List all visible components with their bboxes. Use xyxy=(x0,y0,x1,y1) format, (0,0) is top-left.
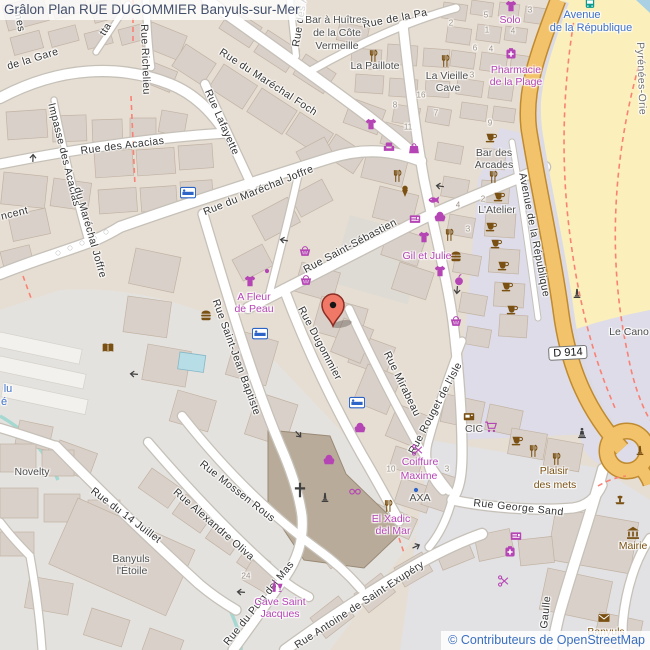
street-label: Rue Alexandre Oliva xyxy=(170,487,256,564)
oneway-arrow-icon xyxy=(27,151,38,162)
street-label: du Maréchal Joffre xyxy=(71,186,108,280)
clothing-icon xyxy=(418,231,431,244)
supermarket-icon xyxy=(485,421,498,434)
oneway-arrow-icon xyxy=(451,285,463,297)
street-label: Rue Richelieu xyxy=(137,24,151,95)
restaurant-icon xyxy=(439,55,452,68)
convenience-icon xyxy=(450,315,463,328)
poi-label: El Xadic xyxy=(372,514,411,526)
housenumber-label: 16 xyxy=(417,92,426,101)
poi-dot-icon xyxy=(264,268,271,275)
poi-label: des mets xyxy=(534,480,577,492)
fountain-icon xyxy=(614,495,627,508)
bakery-icon xyxy=(434,210,447,223)
poi-label: l'Étoile xyxy=(117,566,148,578)
map-title: Grâlon Plan RUE DUGOMMIER Banyuls-sur-Me… xyxy=(0,0,306,20)
place-label: lu xyxy=(4,383,13,395)
clothing-icon xyxy=(244,275,257,288)
hairdresser-icon xyxy=(412,444,425,457)
cafe-icon xyxy=(511,434,524,447)
restaurant-icon xyxy=(367,50,380,63)
housenumber-label: 8 xyxy=(393,102,397,111)
fishmonger-icon xyxy=(428,194,441,207)
street-label: Rue du Maréchal Foch xyxy=(217,47,319,119)
hotel-icon xyxy=(349,395,365,411)
housenumber-label: 11 xyxy=(404,124,412,133)
poi-label: Vermeille xyxy=(315,41,358,53)
poi-label: Solo xyxy=(499,15,520,27)
bakery-icon xyxy=(323,453,336,466)
poi-label: Bar des xyxy=(476,148,512,160)
street-label: Rue Rouget de l'Isle xyxy=(407,361,465,457)
clothing-icon xyxy=(365,118,378,131)
newsagent-icon xyxy=(409,213,422,226)
poi-label: de la Côte xyxy=(313,28,361,40)
oneway-arrow-icon xyxy=(127,368,139,380)
beauty-icon xyxy=(498,575,511,588)
cafe-icon xyxy=(497,259,510,272)
housenumber-label: 4 xyxy=(489,46,493,55)
poi-label: Bar à Huîtres xyxy=(305,15,367,27)
attribution-link[interactable]: © Contributeurs de OpenStreetMap xyxy=(441,631,650,650)
street-label: de la Gare xyxy=(6,46,60,73)
place-label: Avenue xyxy=(563,9,600,21)
oneway-arrow-icon xyxy=(410,539,425,554)
monument-icon xyxy=(319,492,331,504)
street-label: Rue de la Pa xyxy=(362,7,429,31)
oneway-arrow-icon xyxy=(234,586,246,598)
poi-label: de la Plage xyxy=(490,77,543,89)
poi-label: AXA xyxy=(409,493,430,505)
oneway-arrow-icon xyxy=(291,427,307,443)
monument-icon xyxy=(634,445,646,457)
street-label: Rue Saint-Sébastien xyxy=(302,217,399,276)
restaurant-icon xyxy=(487,171,500,184)
monument-icon xyxy=(571,288,583,300)
poi-label: CIC xyxy=(465,424,483,436)
poi-label: Arcades xyxy=(475,160,514,172)
restaurant-icon xyxy=(443,229,456,242)
map-canvas[interactable]: de la GaremesRue RichelieuttaRue du Maré… xyxy=(0,0,650,650)
oneway-arrow-icon xyxy=(433,180,445,192)
clothing-icon xyxy=(434,265,447,278)
poi-label: Maxime xyxy=(401,471,438,483)
street-label: Impasse des Acacias xyxy=(45,102,82,208)
greengrocer-icon xyxy=(453,274,466,287)
post-office-icon xyxy=(598,612,611,625)
library-icon xyxy=(102,342,115,355)
poi-label: La Paillote xyxy=(350,61,399,73)
poi-label: Le Cano xyxy=(609,327,649,339)
poi-label: del Mar xyxy=(375,526,410,538)
poi-label: La Vieille xyxy=(426,71,468,83)
poi-label: Coiffure xyxy=(402,457,439,469)
optician-icon xyxy=(349,485,362,498)
wine-shop-icon xyxy=(271,580,284,593)
street-label: Rue Dugommier xyxy=(295,305,344,383)
housenumber-label: 4 xyxy=(511,28,515,37)
street-label: Rue Saint-Jean Baptiste xyxy=(209,298,262,417)
townhall-icon xyxy=(626,526,640,540)
housenumber-label: 1 xyxy=(485,27,489,36)
housenumber-label: 2 xyxy=(449,20,453,29)
poi-label: L'Atelier xyxy=(478,205,516,217)
restaurant-icon xyxy=(527,445,540,458)
housenumber-label: 3 xyxy=(528,7,532,16)
statue-icon xyxy=(576,427,588,439)
housenumber-label: 7 xyxy=(434,110,438,119)
street-label: Rue Mirabeau xyxy=(380,350,422,419)
poi-label: Cave xyxy=(436,83,461,95)
poi-label: Plaisir xyxy=(540,466,569,478)
cafe-icon xyxy=(501,280,514,293)
cafe-icon xyxy=(493,190,506,203)
poi-dot-icon xyxy=(413,487,420,494)
street-label: Rue Lafayette xyxy=(201,88,240,157)
restaurant-icon xyxy=(550,453,563,466)
convenience-icon xyxy=(299,245,312,258)
street-label: Rue du 14 Juillet xyxy=(88,486,163,547)
housenumber-label: 9 xyxy=(488,120,492,129)
furniture-icon xyxy=(383,141,396,154)
street-label: Avenue de la République xyxy=(515,172,551,298)
poi-label: A Fleur xyxy=(237,292,270,304)
pharmacy-icon xyxy=(504,546,517,559)
bakery-icon xyxy=(354,421,367,434)
housenumber-label: 10 xyxy=(387,466,396,475)
housenumber-label: 4 xyxy=(456,202,460,211)
cafe-icon xyxy=(506,303,519,316)
housenumber-label: 3 xyxy=(470,72,474,81)
street-label: Rue George Sand xyxy=(473,498,564,519)
place-label: é xyxy=(1,396,7,408)
road-shield: D 914 xyxy=(548,345,588,361)
cafe-icon xyxy=(490,237,503,250)
pharmacy-icon xyxy=(505,48,518,61)
newsagent-icon xyxy=(510,530,523,543)
restaurant-icon xyxy=(382,500,395,513)
housenumber-label: 3 xyxy=(466,226,470,235)
hotel-icon xyxy=(252,326,268,342)
poi-label: Jacques xyxy=(260,609,299,621)
poi-label: Novelty xyxy=(14,467,49,479)
church-cross-icon xyxy=(292,482,308,498)
hotel-icon xyxy=(180,185,196,201)
street-label: Rue Antoine de Saint-Exupéry xyxy=(293,559,427,650)
cafe-icon xyxy=(485,131,498,144)
street-label: ncent xyxy=(0,205,30,223)
clothing-icon xyxy=(505,0,518,13)
street-label: Rue des Acacias xyxy=(80,136,165,158)
housenumber-label: 2 xyxy=(481,196,485,205)
oneway-arrow-icon xyxy=(277,234,290,247)
poi-label: Mairie xyxy=(619,541,648,553)
housenumber-label: 6 xyxy=(473,45,477,54)
labels-layer: de la GaremesRue RichelieuttaRue du Maré… xyxy=(0,0,650,650)
cafe-icon xyxy=(485,220,498,233)
street-label: Gaulle xyxy=(539,595,554,629)
poi-label: de Peau xyxy=(234,304,273,316)
bag-icon xyxy=(408,142,421,155)
street-label: tta xyxy=(98,21,115,38)
housenumber-label: 24 xyxy=(242,573,251,582)
ice-cream-icon xyxy=(399,185,412,198)
street-label: Rue du Maréchal Joffre xyxy=(202,164,316,219)
housenumber-label: 5 xyxy=(484,12,488,21)
convenience-icon xyxy=(300,274,313,287)
poi-label: Banyuls xyxy=(112,554,149,566)
bank-icon xyxy=(463,411,476,424)
housenumber-label: 3 xyxy=(445,466,449,475)
fast-food-icon xyxy=(200,309,213,322)
place-label: de la République xyxy=(550,22,633,34)
poi-label: Gil et Julie xyxy=(402,251,451,263)
fast-food-icon xyxy=(450,250,463,263)
street-label: Pyrénées-Orie xyxy=(633,42,647,115)
bus-stop-icon xyxy=(584,0,596,10)
poi-label: Cave Saint xyxy=(254,597,305,609)
restaurant-icon xyxy=(391,170,404,183)
street-label: Rue Mossen Rous xyxy=(197,459,277,525)
street-label: Rue du Puig del Mas xyxy=(222,559,297,648)
poi-label: Pharmacie xyxy=(491,65,541,77)
